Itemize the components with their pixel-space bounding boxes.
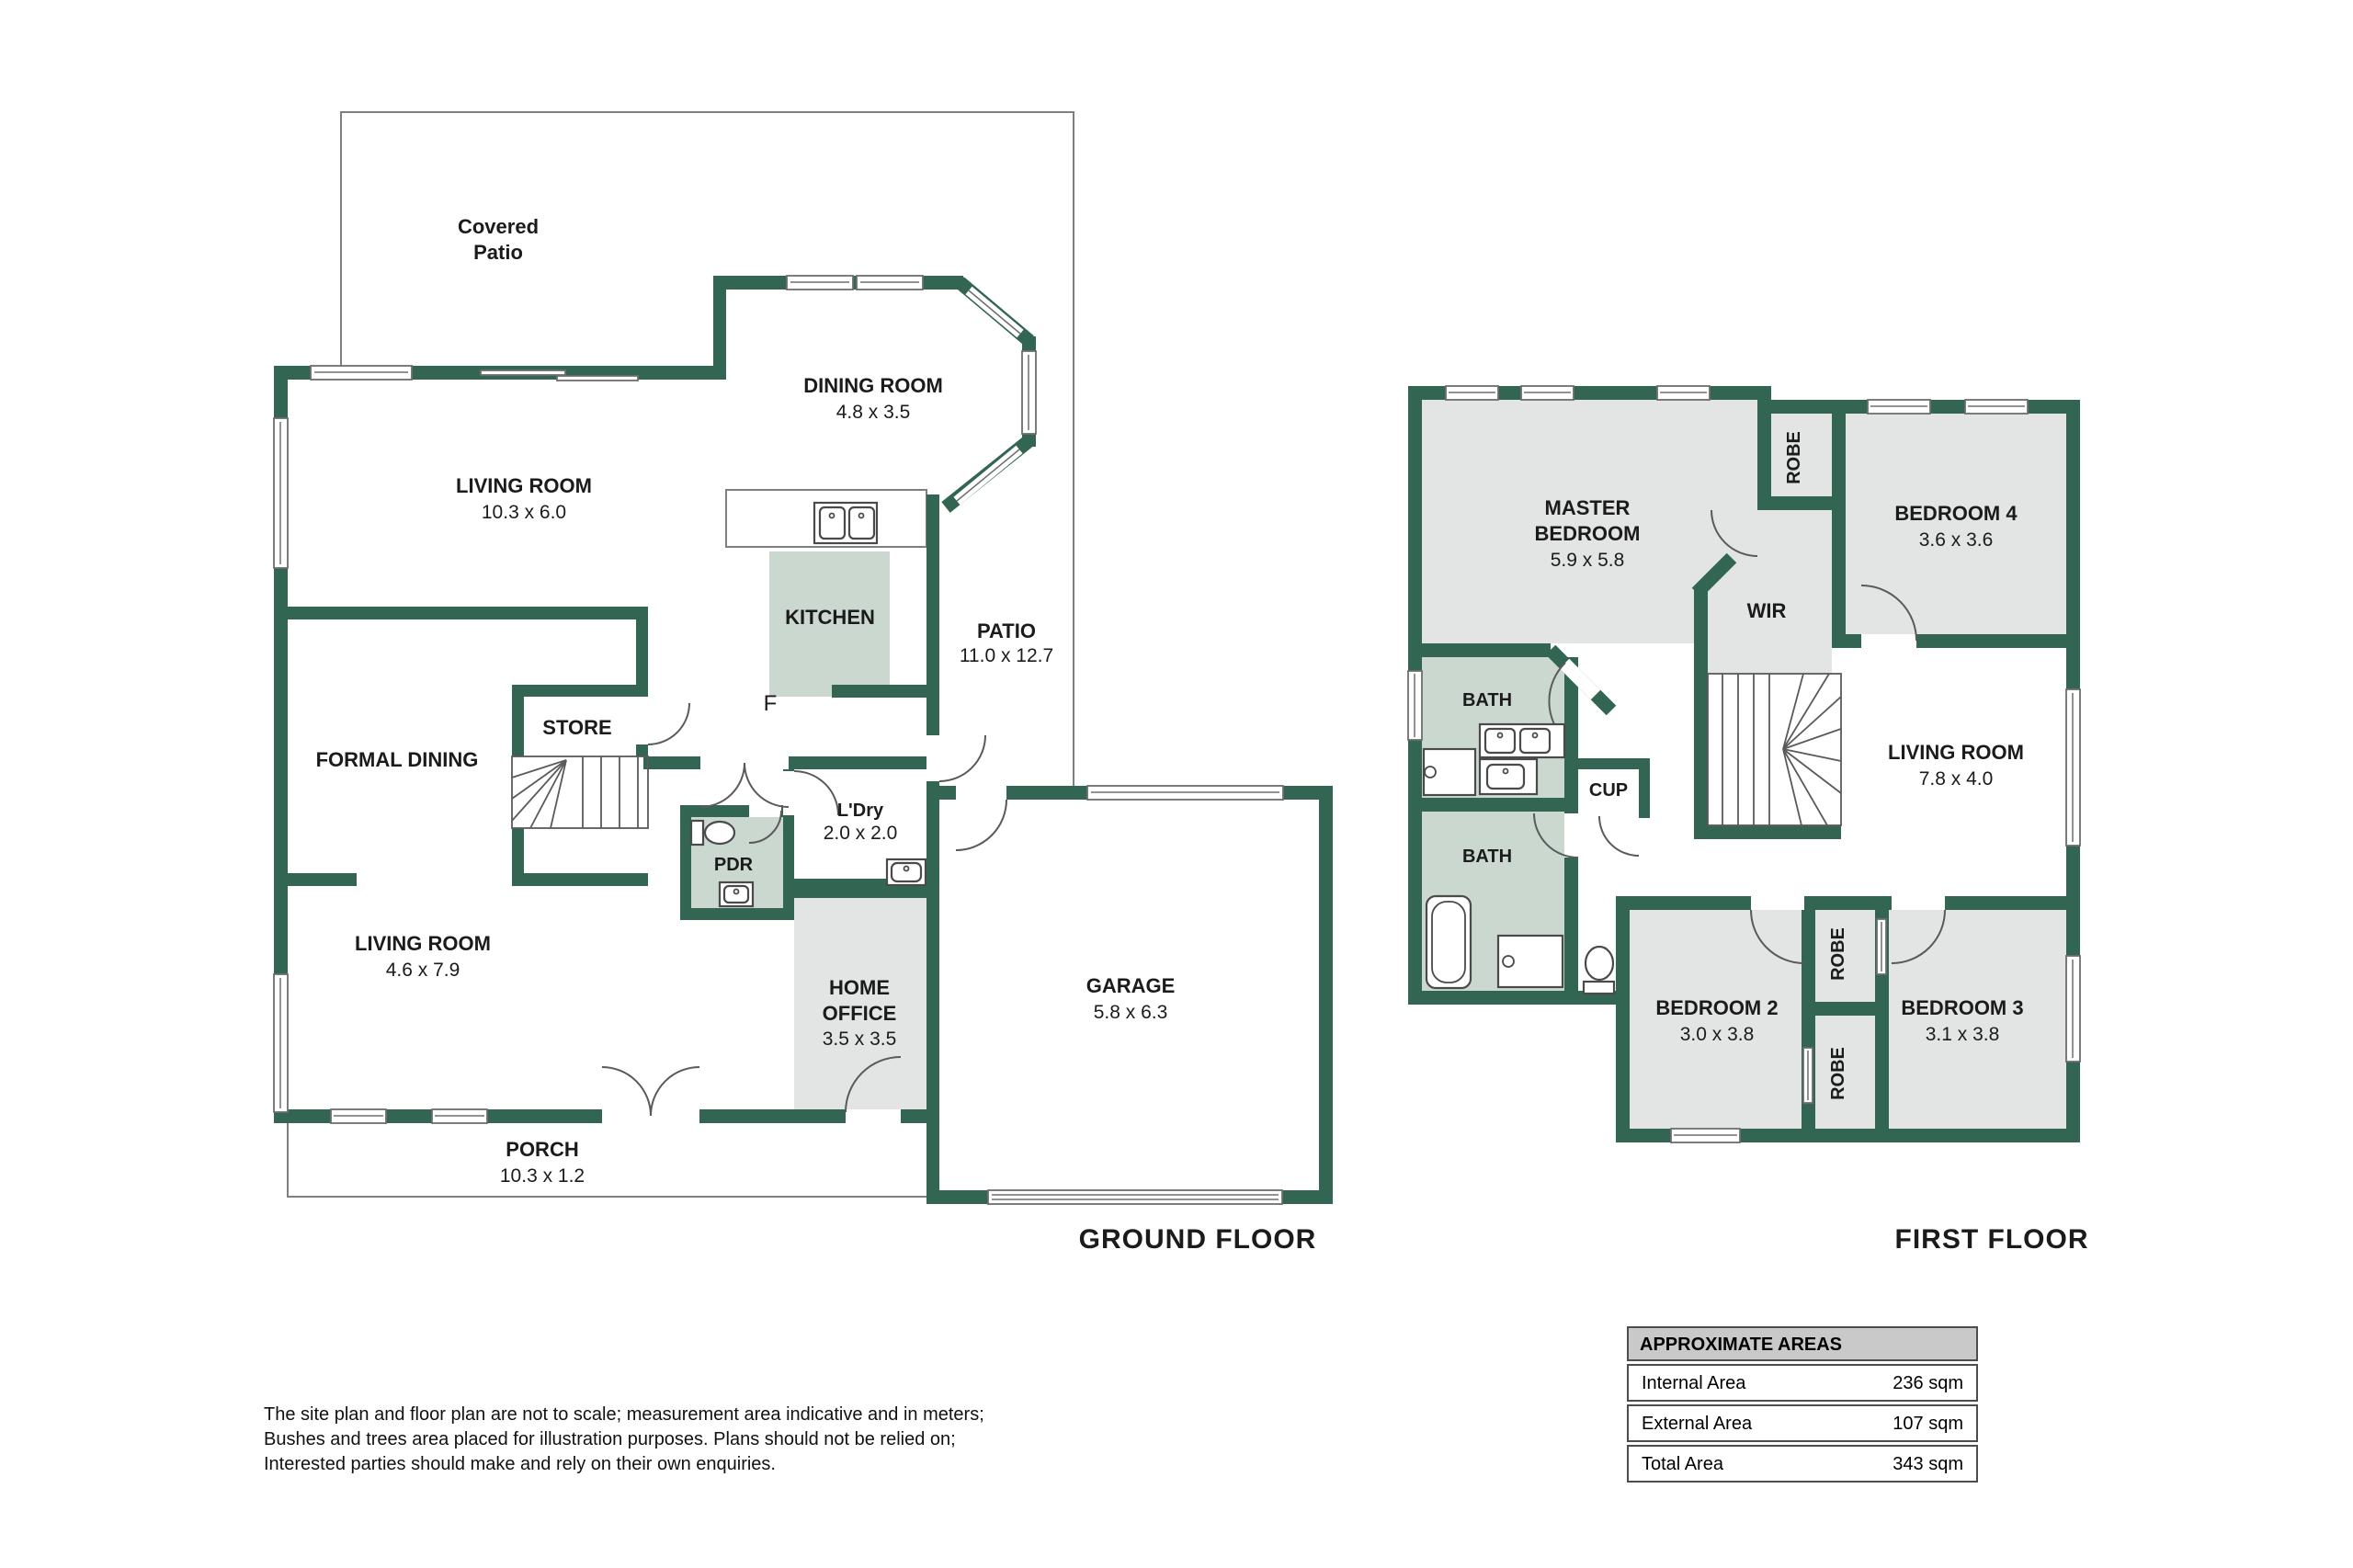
disclaimer-line-2: Bushes and trees area placed for illustr… [264,1427,984,1452]
pdr-sink-icon [720,882,753,906]
areas-value-total: 343 sqm [1893,1447,1963,1481]
label-store: STORE [542,716,611,739]
label-living1f: LIVING ROOM [1888,741,2024,764]
areas-table: APPROXIMATE AREAS Internal Area 236 sqm … [1627,1326,1978,1483]
label-robe-master: ROBE [1784,431,1804,484]
label-dining-dims: 4.8 x 3.5 [836,402,911,423]
label-master-dims: 5.9 x 5.8 [1551,550,1625,571]
disclaimer-text: The site plan and floor plan are not to … [264,1403,984,1477]
label-bedroom4-dims: 3.6 x 3.6 [1919,529,1994,551]
label-bedroom3: BEDROOM 3 [1901,996,2023,1019]
disclaimer-line-3: Interested parties should make and rely … [264,1452,984,1477]
label-living-rear-dims: 10.3 x 6.0 [482,502,566,523]
areas-value-external: 107 sqm [1893,1406,1963,1440]
label-covered-patio-1: Covered [458,215,539,238]
toilet-icon [1584,947,1614,994]
label-bedroom3-dims: 3.1 x 3.8 [1926,1024,2000,1045]
label-covered-patio-2: Patio [473,241,523,264]
areas-row-total: Total Area 343 sqm [1627,1445,1978,1483]
label-office-2: OFFICE [823,1002,897,1025]
ground-floor-plan: Covered Patio LIVING ROOM 10.3 x 6.0 DIN… [274,112,1333,1255]
label-robe-bed3: ROBE [1828,927,1848,981]
label-patio-dims: 11.0 x 12.7 [960,645,1053,666]
kitchen-sink-icon [814,503,877,543]
areas-row-internal: Internal Area 236 sqm [1627,1364,1978,1402]
label-cup: CUP [1589,780,1628,801]
label-garage: GARAGE [1086,974,1176,997]
label-laundry: L'Dry [837,801,884,821]
areas-label-internal: Internal Area [1642,1366,1745,1400]
pdr-toilet-icon [691,821,734,845]
label-bedroom2-dims: 3.0 x 3.8 [1680,1024,1755,1045]
areas-label-external: External Area [1642,1406,1752,1440]
first-stairs [1708,674,1841,825]
label-wir: WIR [1747,599,1787,622]
label-living1f-dims: 7.8 x 4.0 [1919,768,1994,790]
first-door-gaps [1564,634,1945,910]
label-fridge: F [764,691,778,716]
areas-label-total: Total Area [1642,1447,1723,1481]
label-living-rear: LIVING ROOM [456,474,592,497]
label-formal-dining: FORMAL DINING [316,748,479,771]
garage-door [988,1190,1282,1204]
label-bedroom2: BEDROOM 2 [1655,996,1778,1019]
shower-icon [1498,936,1563,987]
label-garage-dims: 5.8 x 6.3 [1094,1002,1168,1023]
label-robe-bed2: ROBE [1828,1047,1848,1100]
first-floor-title: FIRST FLOOR [1895,1224,2089,1255]
label-porch-dims: 10.3 x 1.2 [500,1165,585,1187]
areas-table-header: APPROXIMATE AREAS [1627,1326,1978,1361]
ensuite-shower-icon [1424,749,1475,795]
disclaimer-line-1: The site plan and floor plan are not to … [264,1403,984,1427]
label-pdr: PDR [714,855,754,875]
areas-value-internal: 236 sqm [1893,1366,1963,1400]
label-porch: PORCH [506,1138,578,1161]
label-kitchen: KITCHEN [785,606,875,629]
label-office-1: HOME [829,976,890,999]
label-laundry-dims: 2.0 x 2.0 [824,823,898,844]
ensuite-sink-icon [1480,759,1537,794]
laundry-tub-icon [887,859,926,885]
label-living-front-dims: 4.6 x 7.9 [386,960,460,981]
label-bedroom4: BEDROOM 4 [1894,502,2018,525]
floorplan-svg: Covered Patio LIVING ROOM 10.3 x 6.0 DIN… [0,0,2353,1568]
areas-row-external: External Area 107 sqm [1627,1404,1978,1442]
bathtub-icon [1427,896,1471,988]
ensuite-vanity-icon [1480,724,1564,757]
label-bath-main: BATH [1462,846,1512,867]
label-living-front: LIVING ROOM [355,932,491,955]
label-patio: PATIO [977,619,1036,642]
site-outline [341,112,1074,786]
label-master-1: MASTER [1545,496,1631,519]
label-master-2: BEDROOM [1535,522,1641,545]
porch-outline [288,1123,939,1197]
label-bath-ensuite: BATH [1462,690,1512,710]
ground-stairs [512,756,648,828]
label-office-dims: 3.5 x 3.5 [823,1028,897,1050]
first-floor-plan: MASTER BEDROOM 5.9 x 5.8 ROBE BEDROOM 4 … [1408,386,2088,1255]
ground-windows [274,276,1283,1204]
ground-floor-title: GROUND FLOOR [1079,1224,1317,1255]
label-dining: DINING ROOM [803,374,943,397]
